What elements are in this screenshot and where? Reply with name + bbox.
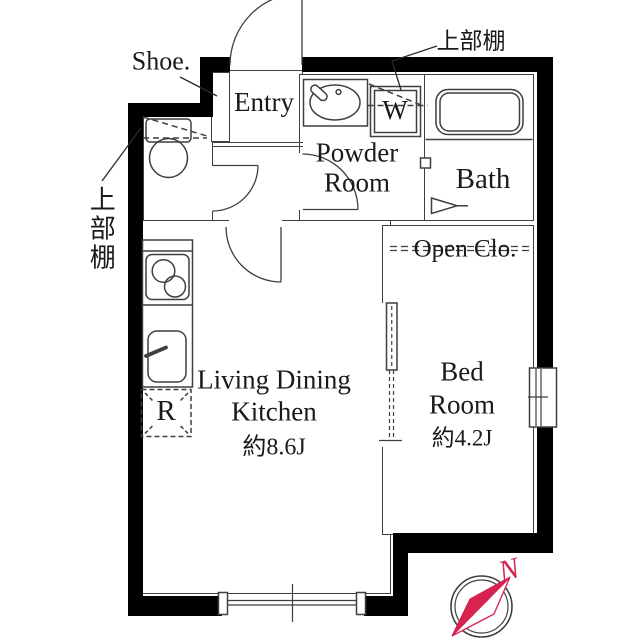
toilet-door-arc [213, 166, 259, 212]
toilet-upper-shelf-dashes [143, 117, 207, 138]
upper-shelf-label-left: 上部棚 [86, 186, 115, 273]
bedroom-size-label: 約4.2J [429, 424, 495, 452]
bedroom-label: Bed Room 約4.2J [429, 356, 495, 453]
toilet [146, 119, 191, 178]
leader-line-shoe [180, 77, 217, 96]
shoe-label: Shoe. [132, 48, 191, 77]
upper-shelf-label-top: 上部棚 [437, 28, 506, 53]
powder-room-label: Powder Room [316, 138, 399, 197]
kitchen-counter [143, 240, 193, 387]
ldk-label-line2: Kitchen [197, 396, 351, 428]
leader-line-shelf-left [102, 128, 141, 181]
bath-folding-door [432, 198, 469, 214]
ldk-door-arc [226, 227, 281, 282]
washer-label: W [382, 96, 407, 126]
powder-room-label-line2: Room [316, 168, 399, 198]
ldk-label: Living Dining Kitchen 約8.6J [197, 364, 351, 461]
bedroom-label-line2: Room [429, 388, 495, 421]
washbasin [304, 80, 368, 127]
entry-door-arc [230, 0, 302, 65]
fridge-label: R [156, 396, 175, 428]
bath-label: Bath [456, 164, 511, 196]
floor-plan: Shoe. 上部棚 上部棚 Entry Powder Room W Bath O… [0, 0, 640, 640]
sliding-door [379, 303, 402, 441]
open-closet-label: Open Clo. [414, 235, 517, 263]
leader-line-shelf-top [392, 46, 437, 90]
window-bedroom [528, 368, 557, 427]
powder-room-label-line1: Powder [316, 138, 399, 168]
fixtures-layer [0, 0, 640, 640]
window-ldk [219, 584, 366, 622]
bedroom-label-line1: Bed [429, 356, 495, 389]
ldk-size-label: 約8.6J [197, 433, 351, 461]
ldk-label-line1: Living Dining [197, 364, 351, 396]
entry-label: Entry [234, 88, 294, 118]
bath-door-jamb [421, 158, 431, 168]
bathtub [426, 90, 533, 140]
